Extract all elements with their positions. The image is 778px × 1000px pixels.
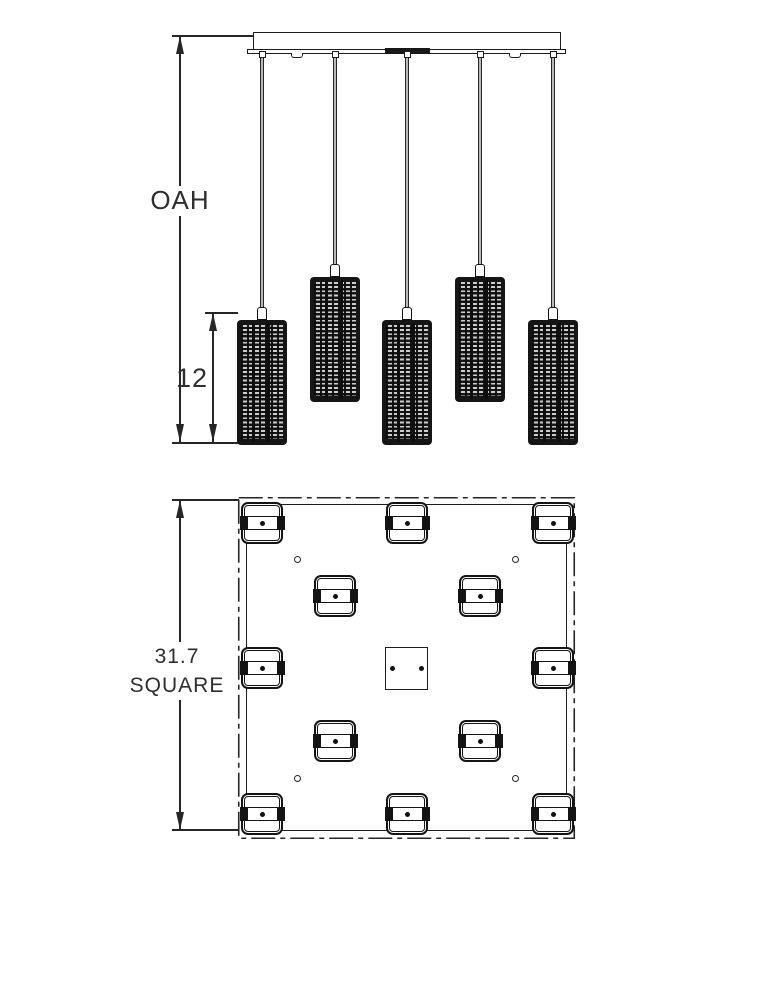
band-end [350,589,358,603]
center-screw [405,521,410,526]
extension-line-top [172,35,254,37]
plan-pendant-symbol [459,575,501,617]
dimension-drawing-canvas: OAH 12 [0,0,778,1000]
dimension-arrow-down-icon [176,424,184,442]
cord-connector [477,51,484,58]
plan-pendant-symbol [532,793,574,835]
band-end [568,516,576,530]
band-end [313,734,321,748]
band-end [531,807,539,821]
center-screw [260,812,265,817]
junction-box-screw [419,666,424,671]
pendant-shade [528,320,578,445]
pendant-socket [475,264,485,277]
dimension-arrow-up-icon [176,500,184,518]
band-end [277,516,285,530]
plan-size-value: 31.7 [122,642,232,671]
plan-pendant-symbol [314,575,356,617]
center-screw [551,812,556,817]
center-screw [260,666,265,671]
center-screw [551,666,556,671]
plan-pendant-symbol [386,793,428,835]
band-end [313,589,321,603]
dimension-arrow-down-icon [176,812,184,830]
pendant-socket [548,307,558,320]
pendant-shade [382,320,432,445]
band-end [458,734,466,748]
shade-height-label: 12 [176,363,206,394]
dimension-arrow-down-icon [209,424,217,442]
pendant-shade [455,277,505,402]
plate-fitting [291,53,303,58]
center-screw [333,594,338,599]
plan-size-unit: SQUARE [122,671,232,700]
pendant-shade [310,277,360,402]
band-end [531,661,539,675]
band-end [568,807,576,821]
pendant-cord [478,57,481,264]
pendant-socket [330,264,340,277]
pendant-cord [405,57,408,307]
band-end [385,807,393,821]
band-end [495,734,503,748]
center-screw [478,594,483,599]
band-end [277,661,285,675]
center-screw [333,739,338,744]
pendant-cord [333,57,336,264]
band-end [277,807,285,821]
plan-pendant-symbol [386,502,428,544]
band-end [458,589,466,603]
center-screw [551,521,556,526]
plan-pendant-symbol [241,793,283,835]
plan-size-label: 31.7 SQUARE [122,642,232,700]
band-end [422,807,430,821]
band-end [495,589,503,603]
band-end [568,661,576,675]
band-end [531,516,539,530]
junction-box-screw [390,666,395,671]
mounting-hole [512,556,519,563]
plan-pendant-symbol [241,647,283,689]
pendant-shade [237,320,287,445]
plan-pendant-symbol [459,720,501,762]
dimension-arrow-up-icon [209,313,217,331]
plan-pendant-symbol [532,502,574,544]
plan-pendant-symbol [314,720,356,762]
center-screw [405,812,410,817]
band-end [240,516,248,530]
mounting-hole [512,775,519,782]
shade-height-dimension-line [212,313,214,442]
cord-connector [404,51,411,58]
pendant-cord [551,57,554,307]
cord-connector [332,51,339,58]
band-end [350,734,358,748]
band-end [240,807,248,821]
plan-pendant-symbol [241,502,283,544]
plan-pendant-symbol [532,647,574,689]
plate-fitting [509,53,521,58]
mounting-hole [294,556,301,563]
band-end [385,516,393,530]
pendant-socket [402,307,412,320]
oah-label: OAH [148,186,212,216]
cord-connector [550,51,557,58]
extension-line-bottom [172,442,242,444]
pendant-cord [260,57,263,307]
cord-connector [259,51,266,58]
center-screw [478,739,483,744]
pendant-socket [257,307,267,320]
mounting-hole [294,775,301,782]
center-screw [260,521,265,526]
band-end [240,661,248,675]
dimension-arrow-up-icon [176,36,184,54]
band-end [422,516,430,530]
